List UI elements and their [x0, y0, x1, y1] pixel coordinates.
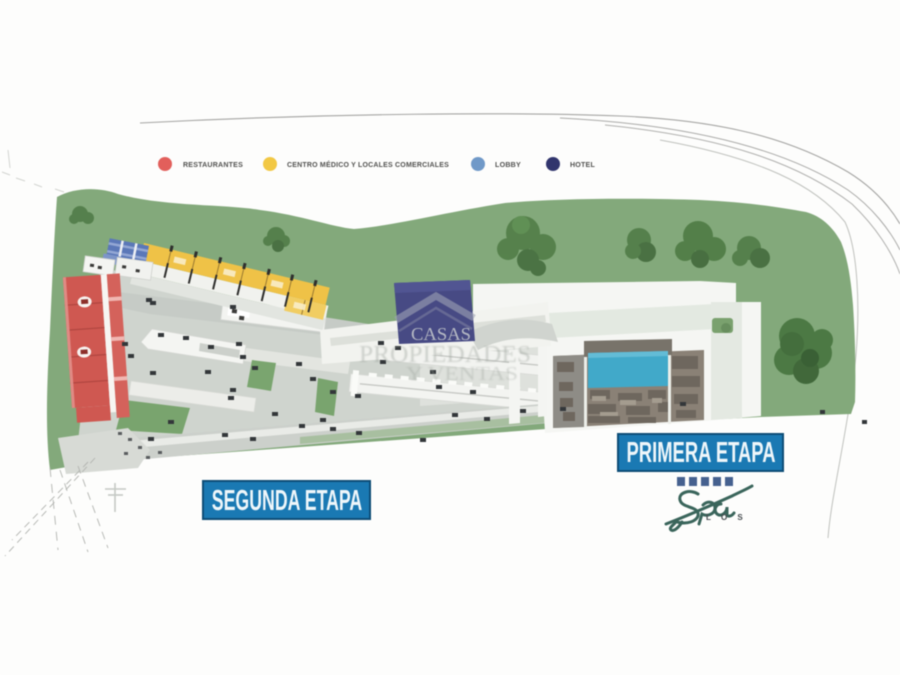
- svg-text:SEGUNDA ETAPA: SEGUNDA ETAPA: [212, 485, 362, 517]
- svg-text:LOBBY: LOBBY: [495, 162, 521, 169]
- svg-text:Y VENTAS: Y VENTAS: [406, 363, 518, 385]
- svg-text:HOTEL: HOTEL: [570, 162, 596, 169]
- svg-text:CENTRO MÉDICO Y LOCALES COMERC: CENTRO MÉDICO Y LOCALES COMERCIALES: [287, 160, 449, 169]
- svg-text:PRIMERA ETAPA: PRIMERA ETAPA: [627, 437, 776, 469]
- svg-text:L O S: L O S: [706, 513, 747, 522]
- svg-text:CASAS: CASAS: [411, 324, 471, 344]
- svg-text:RESTAURANTES: RESTAURANTES: [183, 162, 243, 169]
